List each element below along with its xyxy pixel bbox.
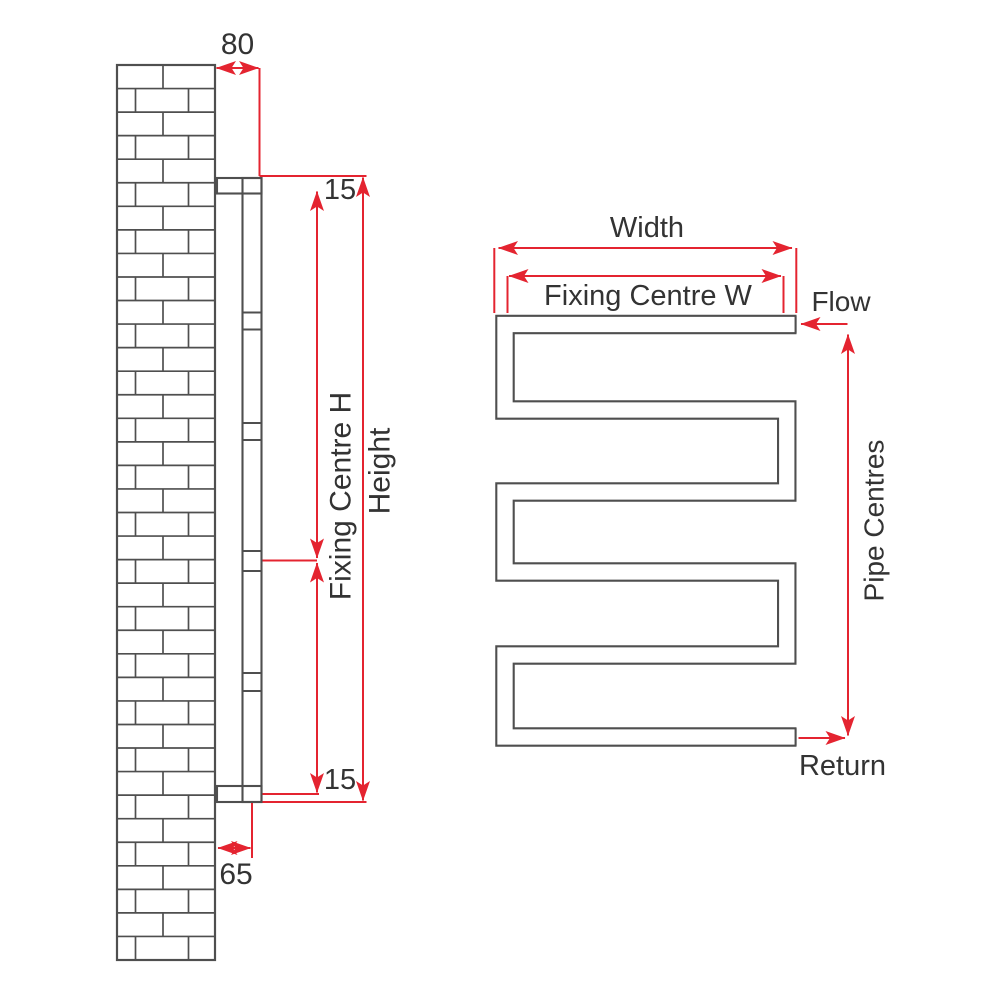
fixing-centre-h-label: Fixing Centre H xyxy=(325,392,358,600)
flow-label: Flow xyxy=(811,286,871,317)
return-label: Return xyxy=(799,750,886,782)
pipe-centres-label: Pipe Centres xyxy=(859,440,890,602)
pipe-centre-65-label: 65 xyxy=(219,858,252,891)
depth-80-label: 80 xyxy=(221,28,254,61)
height-label: Height xyxy=(364,427,397,514)
radiator-dimension-diagram: 80 15 Fixing Centre H Height 15 65 xyxy=(0,0,1005,1005)
width-label: Width xyxy=(610,212,684,244)
top-offset-15-label: 15 xyxy=(324,174,356,206)
bottom-offset-15-label: 15 xyxy=(324,764,356,796)
fixing-centre-w-label: Fixing Centre W xyxy=(544,280,753,312)
